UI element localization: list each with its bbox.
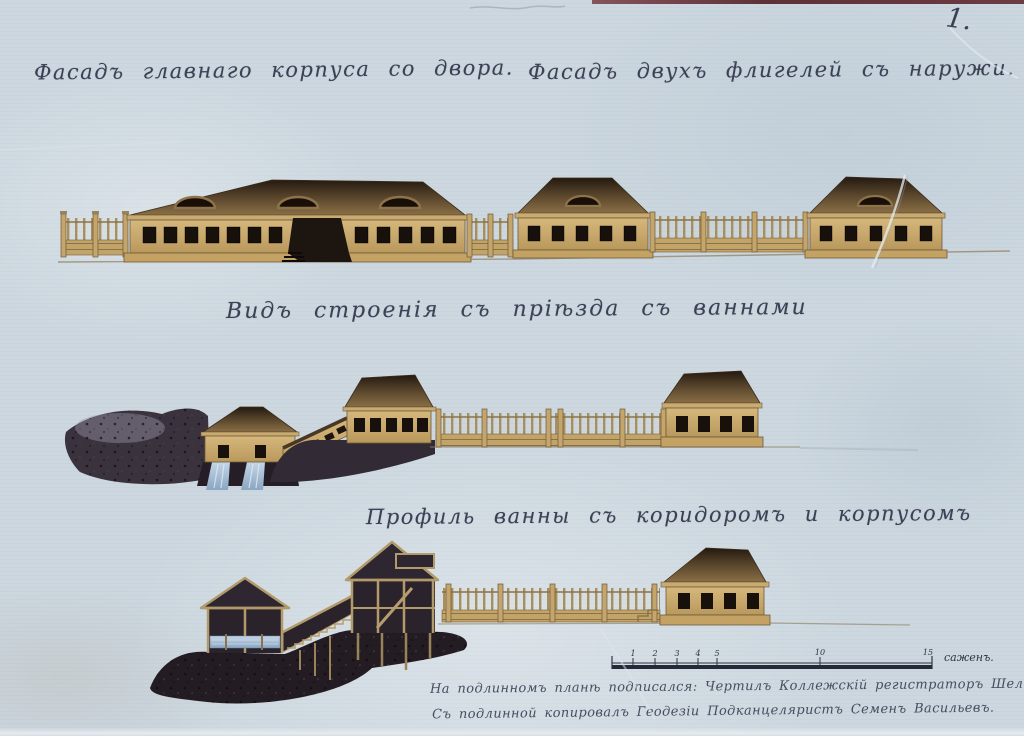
window-row (528, 226, 636, 241)
corner-pavilion (661, 371, 763, 447)
fence-section (442, 584, 660, 622)
scale-tick-label: 1 (630, 649, 635, 658)
entrance-porch (282, 218, 352, 262)
stair-corridor-section (283, 596, 352, 680)
scale-tick-label: 15 (923, 648, 933, 657)
dormer-window (858, 196, 892, 206)
right-wing-facade (805, 177, 947, 258)
pavilion-elevation (660, 548, 770, 625)
bath-view-drawing (0, 350, 1024, 495)
dormer-window (566, 196, 600, 206)
inscription-line-1: На подлинномъ планѣ подписался: Чертилъ … (430, 676, 1024, 697)
faint-pencil-marks (470, 6, 565, 9)
sloped-corridor (283, 418, 347, 466)
waterfalls (206, 462, 265, 490)
scale-bar: 1 2 3 4 5 10 15 саженъ. (612, 648, 994, 669)
caption-bath-view: Видъ строенія съ пріѣзда съ ваннами (226, 295, 808, 324)
ground-line (438, 623, 910, 625)
caption-wings-facade: Фасадъ двухъ флигелей съ наружи. (528, 56, 1016, 84)
scale-tick-label: 5 (714, 649, 719, 658)
wing-fence (650, 212, 808, 252)
window-row (678, 593, 759, 609)
courtyard-fence-right (467, 214, 513, 257)
steps (638, 610, 658, 622)
scale-tick-label: 4 (694, 649, 700, 658)
interior-staircase (377, 588, 412, 628)
water-basin (210, 636, 280, 648)
window-row (820, 226, 932, 241)
dormer-window (278, 197, 318, 208)
scale-tick-label: 2 (651, 649, 657, 658)
main-building-section (346, 542, 438, 670)
inscription-line-2: Съ подлинной копировалъ Геодезіи Подканц… (432, 701, 995, 723)
dormer-window (175, 197, 215, 208)
scale-tick-label: 10 (815, 648, 825, 657)
window-row (354, 418, 428, 432)
scale-tick-label: 3 (674, 649, 679, 658)
main-building-facade (124, 180, 471, 262)
river-bank-left (65, 408, 210, 484)
ground-line (58, 251, 1010, 262)
ground-shadow (800, 448, 918, 450)
scale-unit-label: саженъ. (944, 651, 994, 664)
bath-base (197, 462, 299, 486)
window-row (676, 416, 754, 432)
window-row (143, 227, 456, 243)
approach-building (343, 375, 436, 443)
archival-drawing-sheet: 1. Фасадъ главнаго корпуса со двора. Фас… (0, 0, 1024, 736)
ground-section (150, 630, 467, 704)
courtyard-fence-left (60, 211, 129, 257)
sheet-number: 1. (944, 2, 974, 36)
caption-bath-profile: Профиль ванны съ коридоромъ и корпусомъ (366, 501, 972, 529)
yard-fence (436, 409, 667, 447)
paper-creases-overlay (0, 0, 1024, 736)
river-bank-right (270, 440, 435, 482)
scan-bottom-edge (0, 727, 1024, 736)
left-wing-facade (513, 178, 653, 258)
dormer-window (380, 197, 420, 208)
bath-section (201, 578, 289, 653)
bath-house (201, 407, 299, 462)
facades-row-drawing (0, 160, 1024, 290)
caption-main-facade: Фасадъ главнаго корпуса со двора. (34, 55, 514, 84)
